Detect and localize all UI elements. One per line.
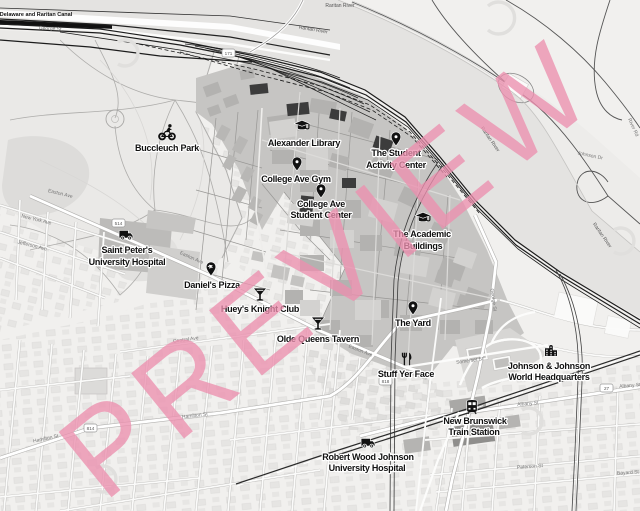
svg-text:Alexander Library: Alexander Library	[268, 138, 341, 148]
svg-text:Johnson & Johnson: Johnson & Johnson	[508, 361, 590, 371]
svg-text:818: 818	[382, 379, 390, 384]
svg-text:514: 514	[115, 221, 123, 226]
svg-text:World Headquarters: World Headquarters	[508, 372, 590, 382]
svg-text:Saint Peter's: Saint Peter's	[102, 245, 153, 255]
svg-text:Delaware and Raritan Canal: Delaware and Raritan Canal	[0, 12, 73, 18]
svg-text:Train Station: Train Station	[448, 427, 499, 437]
svg-text:Raritan River: Raritan River	[325, 3, 355, 9]
svg-text:Buccleuch Park: Buccleuch Park	[135, 143, 200, 153]
svg-text:The Yard: The Yard	[395, 318, 431, 328]
svg-text:College Ave Gym: College Ave Gym	[261, 174, 331, 184]
svg-text:Stuff Yer Face: Stuff Yer Face	[378, 369, 435, 379]
svg-text:171: 171	[225, 51, 233, 56]
svg-text:University Hospital: University Hospital	[89, 257, 166, 267]
svg-text:Robert Wood Johnson: Robert Wood Johnson	[322, 452, 414, 462]
svg-text:New Brunswick: New Brunswick	[443, 416, 508, 426]
svg-text:27: 27	[604, 386, 610, 391]
svg-text:University Hospital: University Hospital	[329, 463, 406, 473]
